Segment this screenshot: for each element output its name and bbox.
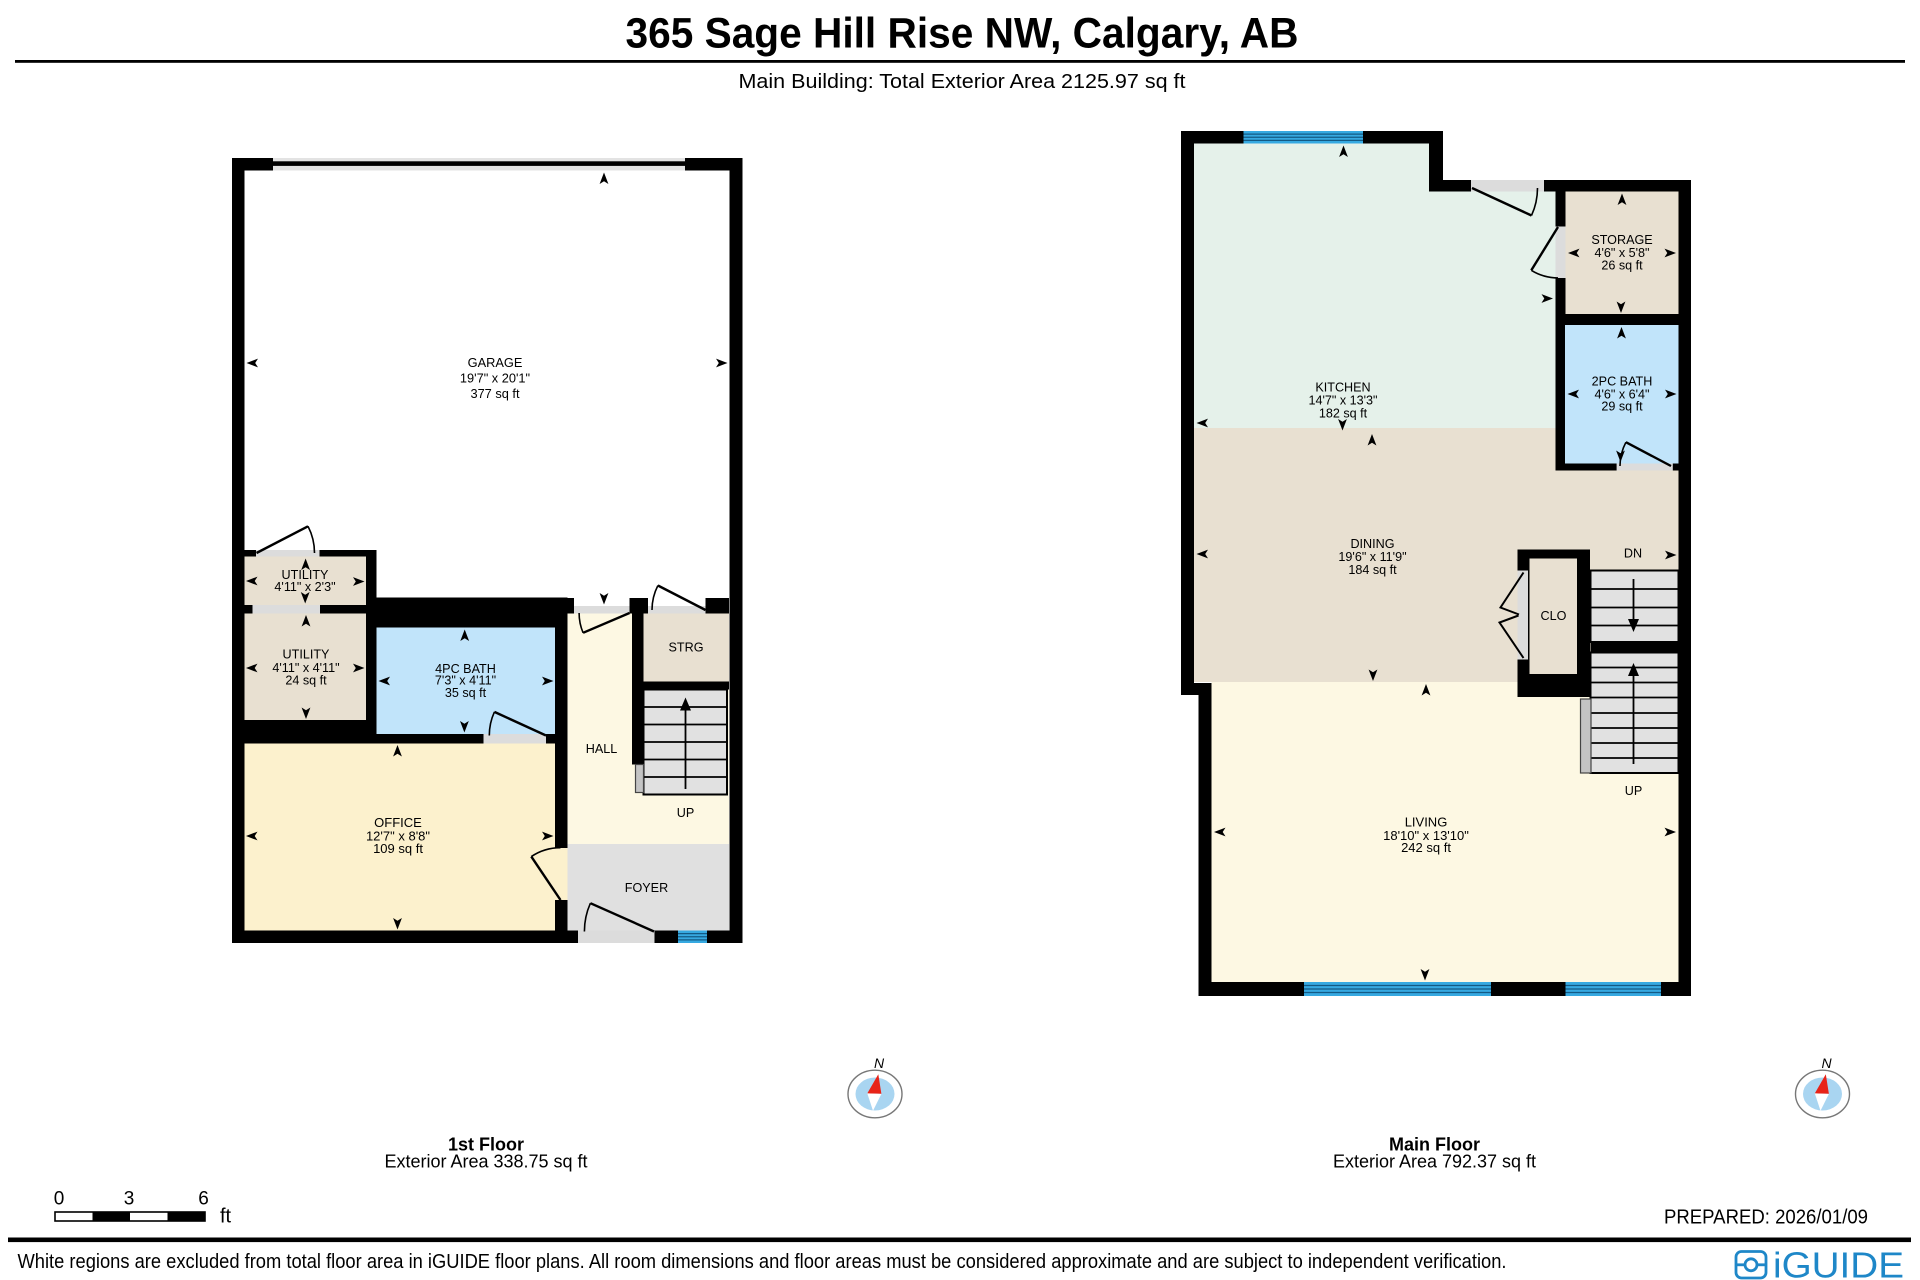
svg-text:242 sq ft: 242 sq ft: [1401, 840, 1451, 855]
svg-text:109 sq ft: 109 sq ft: [373, 841, 423, 856]
svg-text:iGUIDE: iGUIDE: [1773, 1245, 1904, 1280]
svg-text:White regions are excluded fro: White regions are excluded from total fl…: [18, 1250, 1507, 1273]
svg-text:Main Building: Total Exterior: Main Building: Total Exterior Area 2125.…: [739, 71, 1186, 93]
svg-text:ft: ft: [220, 1206, 232, 1228]
svg-text:29 sq ft: 29 sq ft: [1601, 400, 1643, 414]
svg-text:Exterior Area 792.37 sq ft: Exterior Area 792.37 sq ft: [1333, 1152, 1536, 1172]
svg-text:N: N: [874, 1055, 885, 1071]
svg-text:PREPARED: 2026/01/09: PREPARED: 2026/01/09: [1664, 1206, 1868, 1229]
svg-text:24 sq ft: 24 sq ft: [285, 674, 327, 688]
svg-text:19'7" x 20'1": 19'7" x 20'1": [460, 371, 530, 386]
svg-text:14'7" x 13'3": 14'7" x 13'3": [1308, 394, 1377, 408]
svg-text:HALL: HALL: [586, 742, 618, 756]
svg-text:0: 0: [54, 1189, 65, 1210]
svg-text:6: 6: [198, 1189, 209, 1210]
svg-text:4'11" x 2'3": 4'11" x 2'3": [274, 580, 335, 594]
svg-text:FOYER: FOYER: [625, 881, 668, 895]
svg-text:Exterior Area 338.75 sq ft: Exterior Area 338.75 sq ft: [384, 1152, 587, 1172]
svg-text:377 sq ft: 377 sq ft: [470, 386, 520, 401]
svg-text:35 sq ft: 35 sq ft: [445, 686, 487, 700]
svg-text:STORAGE: STORAGE: [1591, 233, 1652, 247]
svg-text:DINING: DINING: [1350, 537, 1394, 551]
svg-text:182 sq ft: 182 sq ft: [1319, 407, 1368, 421]
svg-text:2PC BATH: 2PC BATH: [1592, 375, 1653, 389]
svg-text:365 Sage Hill Rise NW, Calgary: 365 Sage Hill Rise NW, Calgary, AB: [626, 11, 1299, 58]
svg-text:CLO: CLO: [1541, 609, 1567, 623]
svg-text:GARAGE: GARAGE: [468, 355, 523, 370]
svg-text:N: N: [1821, 1055, 1832, 1071]
svg-text:UP: UP: [677, 806, 695, 820]
svg-text:UP: UP: [1625, 784, 1643, 798]
svg-text:DN: DN: [1624, 547, 1642, 561]
svg-text:3: 3: [124, 1189, 135, 1210]
svg-text:STRG: STRG: [669, 641, 704, 655]
svg-text:184 sq ft: 184 sq ft: [1348, 563, 1397, 577]
svg-text:19'6" x 11'9": 19'6" x 11'9": [1338, 550, 1406, 564]
svg-text:26 sq ft: 26 sq ft: [1601, 259, 1643, 273]
svg-text:UTILITY: UTILITY: [283, 648, 330, 662]
svg-text:KITCHEN: KITCHEN: [1315, 381, 1370, 395]
